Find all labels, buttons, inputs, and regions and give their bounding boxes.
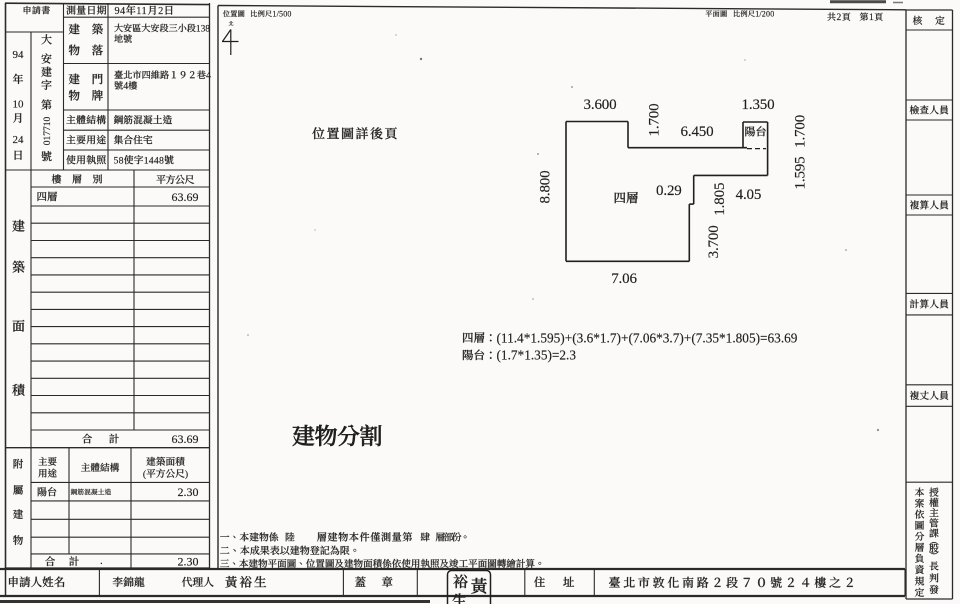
- svg-text:1/500: 1/500: [272, 10, 291, 19]
- svg-text:4: 4: [206, 70, 211, 81]
- svg-text:63.69: 63.69: [172, 432, 199, 446]
- svg-text:(11.4*1.595)+(3.6*1.7)+(7.06*3: (11.4*1.595)+(3.6*1.7)+(7.06*3.7)+(7.35*…: [497, 330, 798, 345]
- svg-text:11: 11: [136, 6, 147, 17]
- svg-text:24: 24: [13, 134, 25, 146]
- svg-text:.: .: [100, 555, 103, 567]
- svg-text:3.700: 3.700: [706, 225, 722, 258]
- svg-text:1.700: 1.700: [647, 103, 663, 136]
- svg-text:94: 94: [115, 6, 126, 17]
- svg-text:1.595: 1.595: [793, 156, 809, 189]
- svg-text:017710: 017710: [43, 116, 53, 145]
- svg-text:7.06: 7.06: [611, 271, 637, 287]
- svg-text:4.05: 4.05: [736, 187, 762, 203]
- svg-text:1.350: 1.350: [742, 97, 775, 113]
- svg-text:58: 58: [114, 155, 124, 166]
- svg-text:1448: 1448: [144, 155, 164, 166]
- svg-text:1.805: 1.805: [712, 183, 728, 216]
- svg-text:(1.7*1.35)=2.3: (1.7*1.35)=2.3: [497, 348, 577, 363]
- svg-text:138: 138: [196, 24, 210, 34]
- svg-text:4: 4: [123, 81, 128, 92]
- svg-text:1.700: 1.700: [793, 115, 809, 148]
- svg-text:63.69: 63.69: [172, 190, 199, 204]
- svg-text:3.600: 3.600: [584, 97, 617, 113]
- svg-text:1: 1: [869, 13, 874, 23]
- svg-text:8.800: 8.800: [537, 170, 553, 203]
- svg-text:2.30: 2.30: [178, 485, 199, 499]
- svg-text:2.30: 2.30: [178, 555, 199, 569]
- svg-text:10: 10: [13, 98, 25, 110]
- svg-text:): ): [185, 469, 188, 480]
- svg-text:2: 2: [837, 13, 842, 23]
- svg-text:1/200: 1/200: [755, 10, 774, 19]
- svg-text:6.450: 6.450: [681, 124, 714, 140]
- svg-text:2: 2: [158, 6, 164, 17]
- svg-text:0.29: 0.29: [656, 183, 682, 199]
- svg-text:94: 94: [13, 49, 25, 61]
- svg-text:(: (: [143, 469, 146, 480]
